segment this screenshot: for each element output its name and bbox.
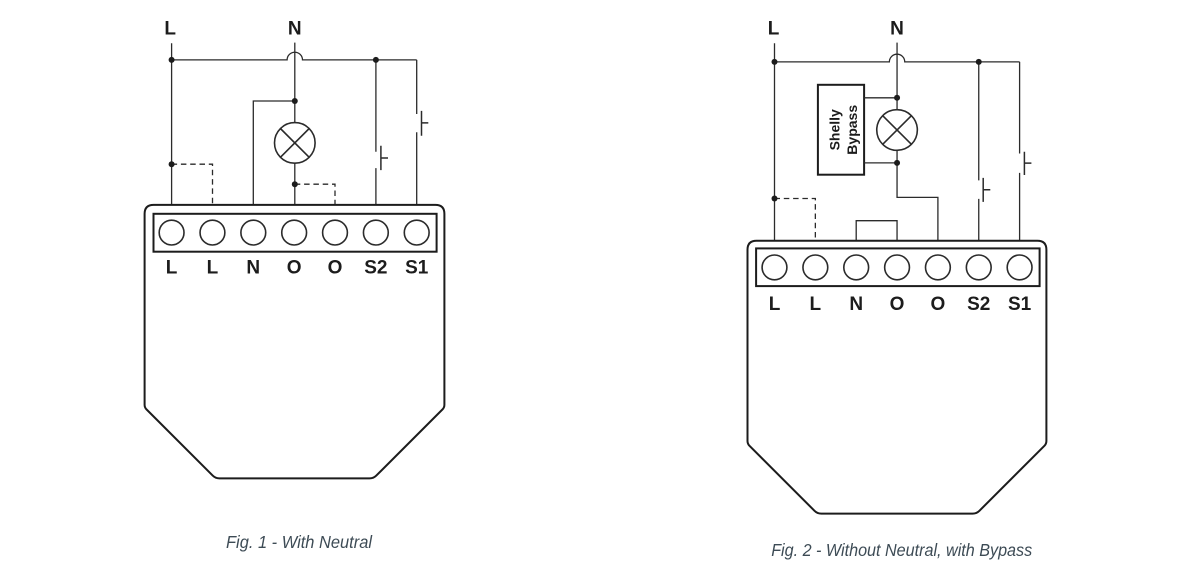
svg-text:N: N	[288, 18, 302, 39]
svg-text:S2: S2	[967, 294, 990, 315]
svg-text:S1: S1	[405, 257, 429, 278]
svg-text:Shelly: Shelly	[827, 109, 843, 150]
svg-text:L: L	[166, 257, 178, 278]
svg-text:N: N	[890, 18, 904, 39]
svg-text:L: L	[769, 294, 781, 315]
svg-text:O: O	[931, 294, 946, 315]
svg-text:Fig. 2 - Without Neutral, with: Fig. 2 - Without Neutral, with Bypass	[771, 540, 1032, 560]
svg-text:O: O	[287, 257, 302, 278]
svg-text:O: O	[890, 294, 905, 315]
svg-text:L: L	[207, 257, 219, 278]
svg-text:L: L	[164, 18, 176, 39]
svg-text:O: O	[328, 257, 343, 278]
svg-text:N: N	[246, 257, 260, 278]
svg-text:L: L	[810, 294, 822, 315]
svg-text:S2: S2	[364, 257, 387, 278]
svg-text:Bypass: Bypass	[844, 105, 860, 155]
svg-text:L: L	[768, 18, 780, 39]
svg-text:N: N	[849, 294, 863, 315]
svg-text:Fig. 1 - With Neutral: Fig. 1 - With Neutral	[226, 532, 373, 552]
svg-text:S1: S1	[1008, 294, 1032, 315]
